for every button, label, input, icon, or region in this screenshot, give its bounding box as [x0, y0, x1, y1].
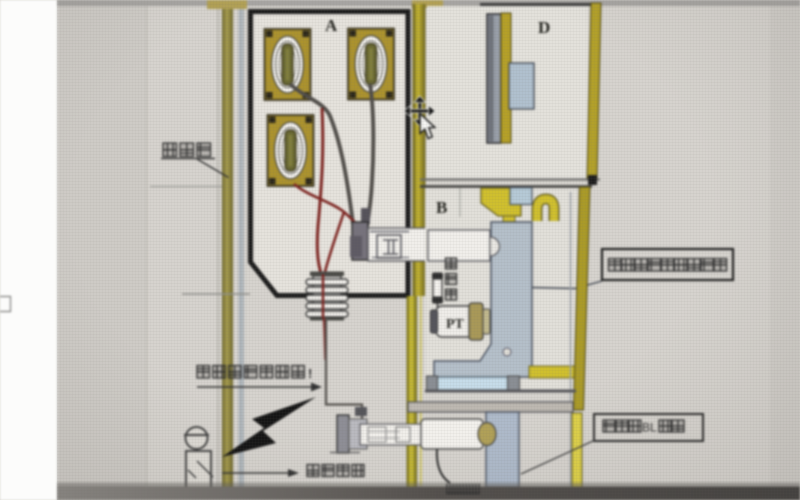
- svg-text:A: A: [325, 16, 338, 35]
- svg-text:!: !: [308, 366, 312, 381]
- svg-text:BL: BL: [642, 421, 657, 435]
- svg-text:B: B: [436, 198, 447, 217]
- svg-text:PT: PT: [446, 317, 465, 332]
- svg-text:D: D: [538, 18, 550, 37]
